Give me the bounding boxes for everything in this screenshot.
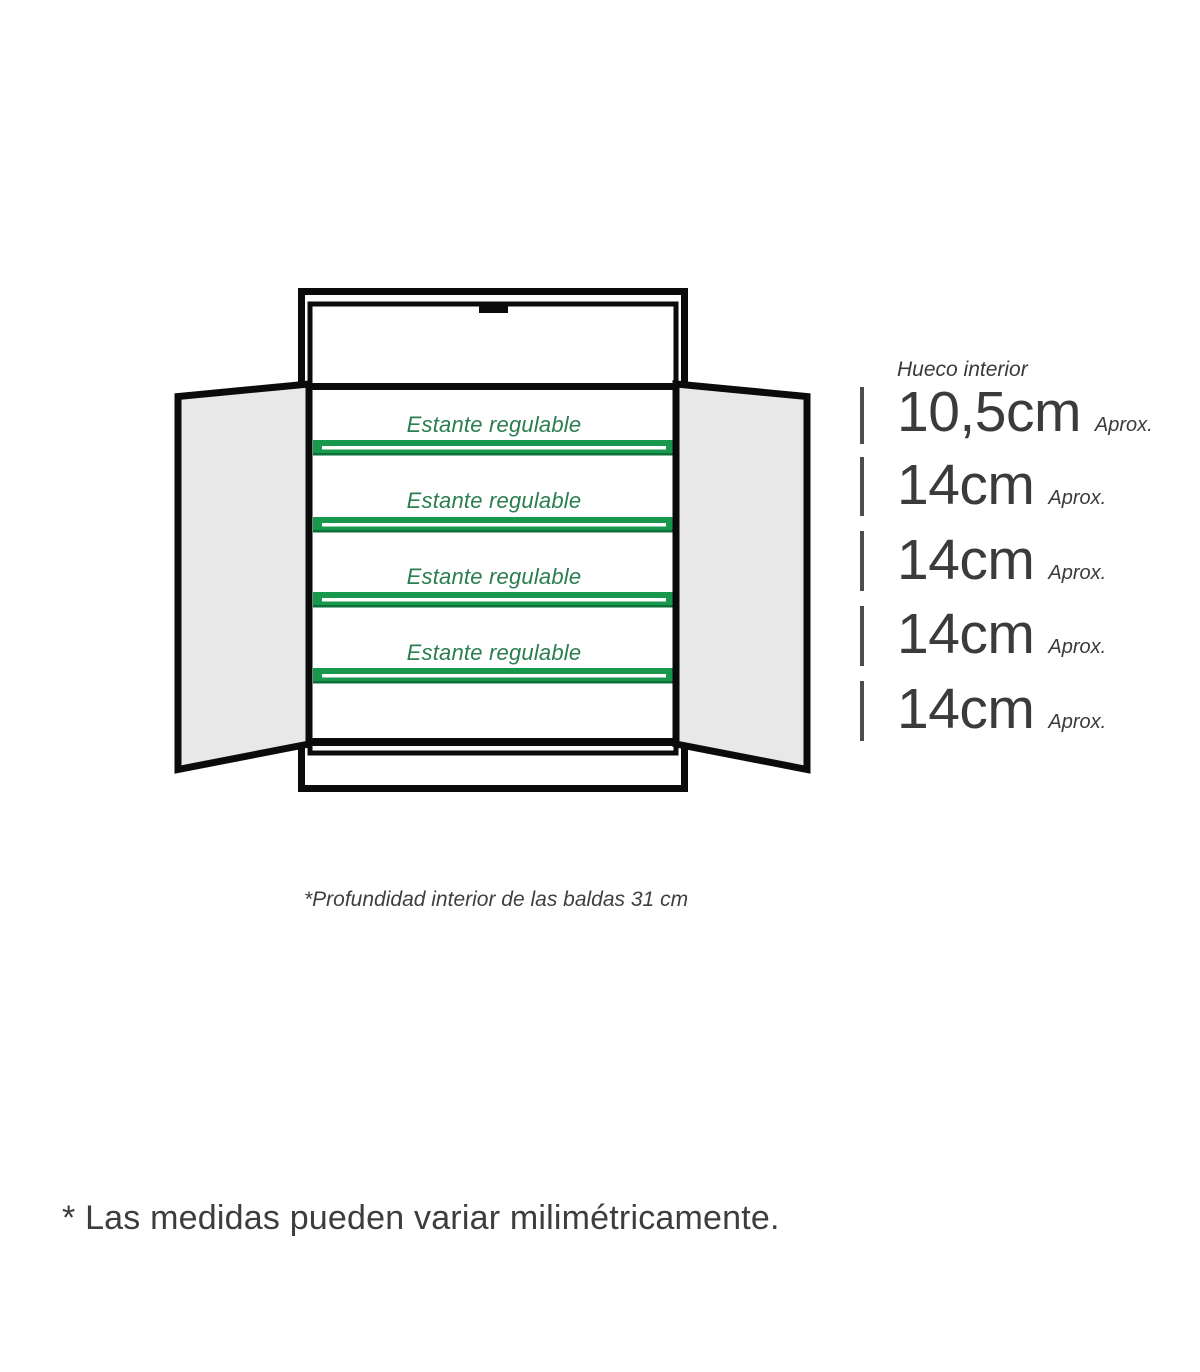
shelf-label-3: Estante regulable — [313, 564, 675, 590]
depth-note: *Profundidad interior de las baldas 31 c… — [304, 888, 688, 912]
shelf-label-4: Estante regulable — [313, 640, 675, 666]
shelf-stripe — [322, 674, 666, 678]
measurement-row-4: 14cmAprox. — [897, 606, 1106, 663]
shelf-edge — [313, 605, 674, 608]
shelf-stripe — [322, 523, 666, 527]
measurement-value: 14cm — [897, 677, 1034, 741]
measurement-value: 14cm — [897, 453, 1034, 517]
right-door — [676, 384, 807, 770]
measurement-row-2: 14cmAprox. — [897, 457, 1106, 514]
shelf-2 — [313, 517, 674, 533]
measurement-row-5: 14cmAprox. — [897, 681, 1106, 738]
measurement-row-1: 10,5cmAprox. — [897, 384, 1153, 441]
shelf-edge — [313, 681, 674, 684]
measurements-header: Hueco interior — [897, 358, 1028, 382]
measurement-approx: Aprox. — [1048, 487, 1106, 509]
measurement-row-3: 14cmAprox. — [897, 532, 1106, 589]
measurement-approx: Aprox. — [1095, 414, 1153, 436]
shelf-stripe — [322, 598, 666, 602]
cabinet-outer-frame — [302, 292, 685, 789]
left-door — [178, 384, 309, 770]
measurement-approx: Aprox. — [1048, 562, 1106, 584]
measurement-approx: Aprox. — [1048, 636, 1106, 658]
shelf-edge — [313, 453, 674, 456]
measurement-value: 14cm — [897, 528, 1034, 592]
measurement-value: 10,5cm — [897, 380, 1081, 444]
shelf-4 — [313, 668, 674, 684]
shelf-1 — [313, 440, 674, 456]
shelf-stripe — [322, 446, 666, 450]
shelf-edge — [313, 530, 674, 533]
latch-mark — [479, 303, 508, 313]
diagram-canvas: Estante regulable Estante regulable Esta… — [0, 0, 1200, 1372]
shelf-3 — [313, 592, 674, 608]
measurement-approx: Aprox. — [1048, 711, 1106, 733]
shelf-label-2: Estante regulable — [313, 488, 675, 514]
shelf-label-1: Estante regulable — [313, 412, 675, 438]
disclaimer-note: * Las medidas pueden variar milimétricam… — [62, 1199, 780, 1238]
measurement-value: 14cm — [897, 602, 1034, 666]
